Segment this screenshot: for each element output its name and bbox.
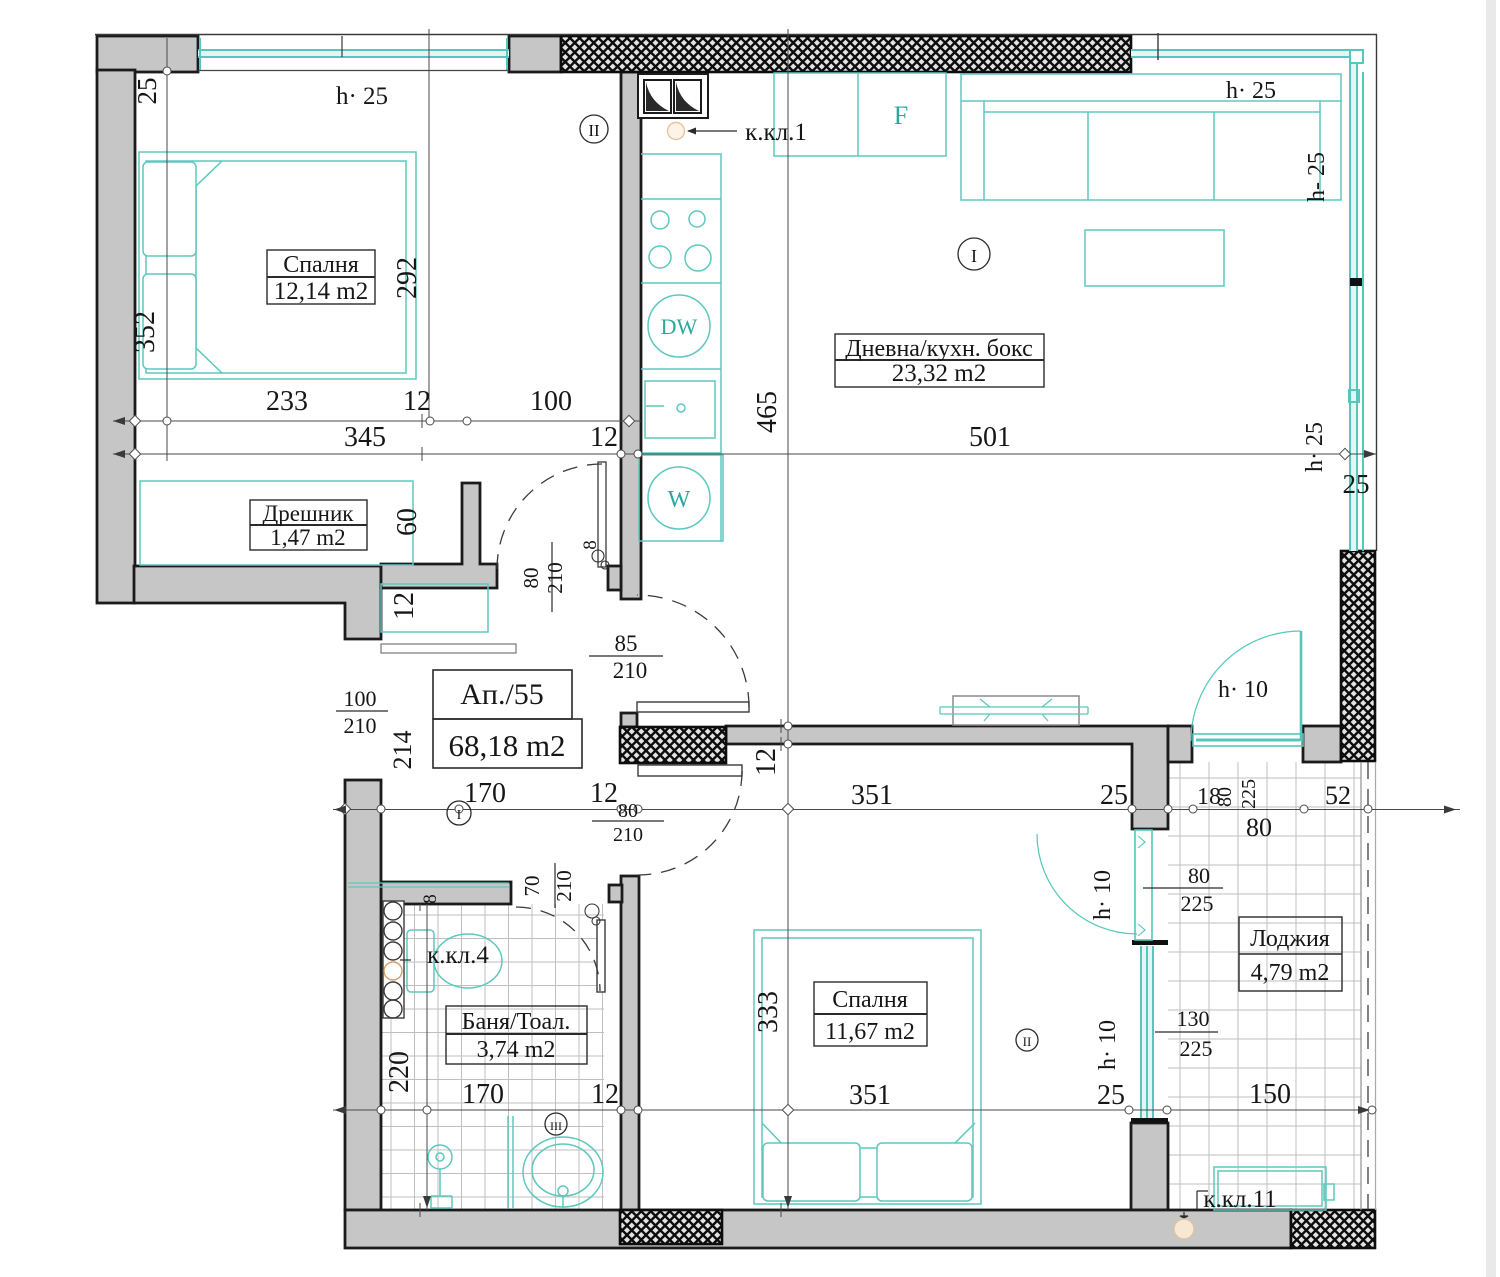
svg-text:Лоджия: Лоджия	[1250, 926, 1330, 952]
svg-text:25: 25	[132, 78, 162, 105]
svg-text:80: 80	[618, 800, 638, 822]
svg-text:80: 80	[519, 568, 543, 589]
svg-text:210: 210	[613, 658, 648, 683]
svg-text:к.кл.11: к.кл.11	[1203, 1186, 1276, 1213]
svg-text:III: III	[550, 1119, 562, 1133]
svg-text:220: 220	[384, 1051, 415, 1093]
svg-text:h· 25: h· 25	[336, 83, 388, 110]
svg-text:к.кл.4: к.кл.4	[427, 942, 489, 969]
svg-text:345: 345	[344, 422, 386, 453]
svg-text:3,74 m2: 3,74 m2	[477, 1037, 556, 1063]
svg-text:80: 80	[1246, 813, 1272, 842]
svg-text:68,18 m2: 68,18 m2	[448, 728, 565, 763]
svg-text:210: 210	[613, 824, 643, 846]
svg-text:12: 12	[590, 422, 618, 453]
svg-text:333: 333	[753, 991, 784, 1033]
svg-text:130: 130	[1177, 1006, 1210, 1031]
svg-text:501: 501	[969, 422, 1011, 453]
svg-text:Спалня: Спалня	[283, 252, 359, 278]
svg-text:II: II	[1023, 1034, 1032, 1049]
svg-text:85: 85	[615, 631, 638, 656]
svg-text:11,67 m2: 11,67 m2	[825, 1019, 915, 1045]
svg-text:I: I	[971, 246, 977, 266]
svg-text:12,14 m2: 12,14 m2	[274, 278, 368, 305]
svg-text:I: I	[457, 808, 462, 823]
svg-text:8: 8	[420, 894, 441, 904]
svg-text:352: 352	[130, 311, 161, 353]
svg-text:210: 210	[344, 713, 377, 738]
svg-text:4,79 m2: 4,79 m2	[1251, 960, 1330, 986]
svg-text:225: 225	[1238, 779, 1260, 809]
svg-text:233: 233	[266, 386, 308, 417]
svg-text:W: W	[668, 487, 691, 513]
svg-text:h· 10: h· 10	[1090, 870, 1116, 920]
svg-text:Спалня: Спалня	[832, 987, 908, 1013]
svg-text:12: 12	[389, 592, 420, 620]
svg-text:225: 225	[1181, 891, 1214, 916]
svg-text:351: 351	[849, 1080, 891, 1111]
svg-text:II: II	[588, 121, 600, 140]
svg-text:12: 12	[403, 386, 431, 417]
svg-text:100: 100	[344, 686, 377, 711]
svg-text:210: 210	[543, 562, 567, 594]
svg-text:214: 214	[388, 731, 417, 770]
svg-text:100: 100	[530, 386, 572, 417]
svg-text:h· 10: h· 10	[1218, 677, 1268, 703]
svg-text:25: 25	[1097, 1080, 1125, 1111]
svg-text:25: 25	[1343, 469, 1370, 499]
svg-text:h- 25: h- 25	[1304, 152, 1330, 202]
svg-text:210: 210	[552, 870, 576, 902]
svg-text:h· 25: h· 25	[1302, 422, 1328, 472]
svg-text:к.кл.1: к.кл.1	[745, 119, 807, 146]
svg-text:465: 465	[752, 391, 783, 433]
svg-text:12: 12	[751, 748, 782, 776]
svg-text:h· 10: h· 10	[1095, 1020, 1121, 1070]
svg-text:80: 80	[1214, 787, 1236, 807]
svg-text:12: 12	[591, 1079, 619, 1110]
svg-text:Ап./55: Ап./55	[460, 678, 544, 711]
svg-text:52: 52	[1325, 781, 1351, 810]
svg-text:225: 225	[1180, 1036, 1213, 1061]
svg-text:70: 70	[520, 876, 544, 897]
svg-text:Баня/Тоал.: Баня/Тоал.	[462, 1009, 571, 1035]
svg-text:60: 60	[392, 508, 423, 536]
svg-text:Дрешник: Дрешник	[263, 501, 355, 526]
svg-text:170: 170	[464, 778, 506, 809]
svg-text:12: 12	[590, 778, 618, 809]
svg-text:170: 170	[462, 1079, 504, 1110]
svg-text:8: 8	[580, 540, 601, 550]
svg-text:h· 25: h· 25	[1226, 78, 1276, 104]
svg-text:23,32 m2: 23,32 m2	[892, 360, 986, 387]
svg-text:150: 150	[1249, 1079, 1291, 1110]
svg-text:80: 80	[1188, 863, 1210, 888]
svg-text:DW: DW	[661, 314, 698, 339]
svg-text:351: 351	[851, 780, 893, 811]
svg-text:F: F	[894, 101, 908, 130]
svg-text:292: 292	[392, 257, 423, 299]
svg-text:Дневна/кухн. бокс: Дневна/кухн. бокс	[845, 336, 1032, 362]
svg-text:1,47 m2: 1,47 m2	[270, 525, 345, 550]
svg-text:25: 25	[1100, 780, 1128, 811]
